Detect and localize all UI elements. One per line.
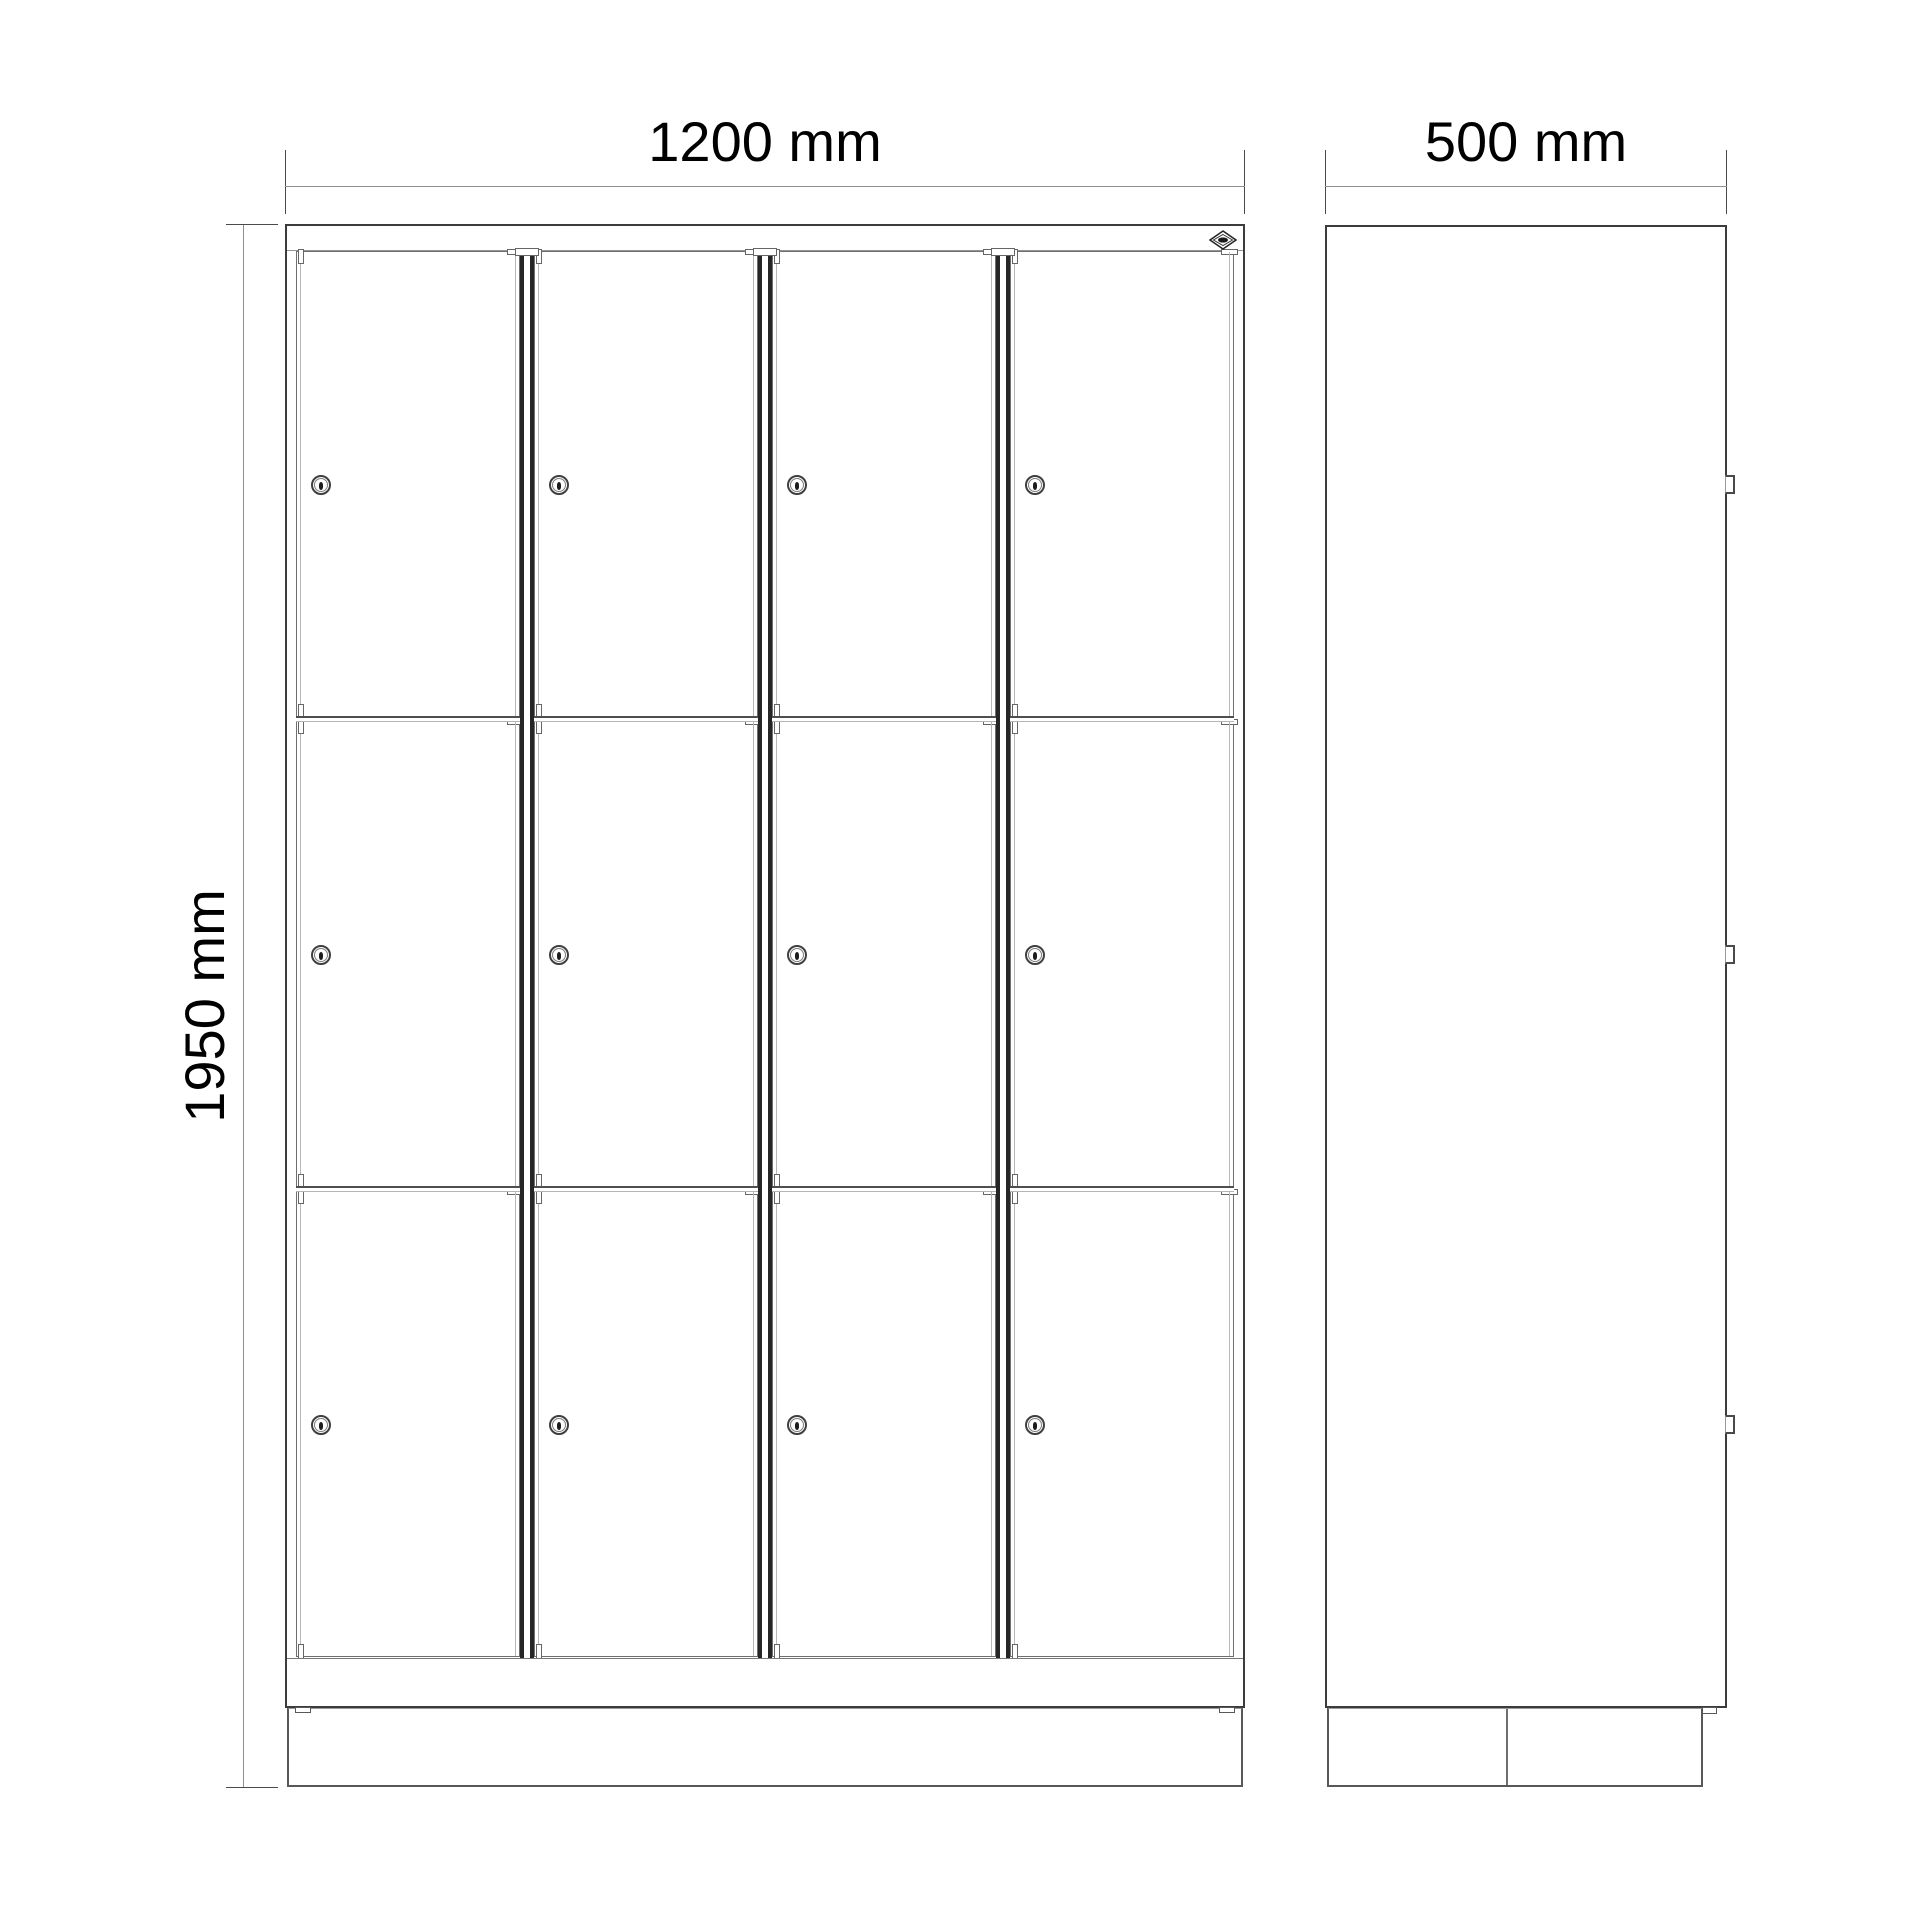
- width-dimension-line: [285, 186, 1245, 187]
- mullion: [758, 251, 772, 1658]
- depth-dimension-line: [1325, 186, 1727, 187]
- locker-door: [534, 721, 758, 1187]
- cylinder-lock-icon: [1025, 1415, 1045, 1435]
- cylinder-lock-icon: [787, 945, 807, 965]
- locker-door: [296, 721, 520, 1187]
- locker-door: [772, 251, 996, 717]
- hinge-bracket-icon: [1725, 1415, 1735, 1434]
- cylinder-lock-icon: [549, 475, 569, 495]
- cylinder-lock-icon: [311, 945, 331, 965]
- cylinder-lock-icon: [787, 475, 807, 495]
- locker-door: [534, 1191, 758, 1657]
- hinge-bracket-icon: [1725, 475, 1735, 494]
- locker-door: [772, 721, 996, 1187]
- cylinder-lock-icon: [549, 945, 569, 965]
- front-view: [285, 224, 1245, 1708]
- side-plinth-divider: [1506, 1709, 1508, 1785]
- locker-door: [1010, 1191, 1234, 1657]
- locker-doors-grid: [296, 251, 1234, 1658]
- side-plinth-bracket: [1702, 1707, 1717, 1714]
- door-hinge-bracket-bottom: [298, 1644, 304, 1659]
- plinth-notch-left: [295, 1707, 311, 1713]
- height-extension-line-bottom: [226, 1787, 278, 1788]
- cylinder-lock-icon: [549, 1415, 569, 1435]
- hinge-bracket-icon: [1725, 945, 1735, 964]
- locker-door: [296, 1191, 520, 1657]
- side-view: [1325, 225, 1727, 1708]
- door-hinge-bracket-bottom: [774, 1644, 780, 1659]
- door-hinge-bracket-top: [298, 249, 304, 264]
- technical-drawing-canvas: 1200 mm 500 mm 1950 mm: [0, 0, 1920, 1920]
- locker-door: [534, 251, 758, 717]
- locker-door: [1010, 721, 1234, 1187]
- height-extension-line-top: [226, 224, 278, 225]
- side-plinth: [1327, 1708, 1703, 1787]
- manufacturer-diamond-logo-icon: [1209, 230, 1237, 250]
- door-hinge-bracket-bottom: [536, 1644, 542, 1659]
- height-dimension-line: [243, 224, 244, 1787]
- mullion: [996, 251, 1010, 1658]
- plinth-notch-right: [1219, 1707, 1235, 1713]
- depth-dimension-label: 500 mm: [1325, 114, 1727, 170]
- locker-door: [772, 1191, 996, 1657]
- locker-door: [296, 251, 520, 717]
- height-dimension-label: 1950 mm: [177, 856, 233, 1156]
- cylinder-lock-icon: [311, 1415, 331, 1435]
- cylinder-lock-icon: [787, 1415, 807, 1435]
- front-plinth: [287, 1708, 1243, 1787]
- cylinder-lock-icon: [1025, 475, 1045, 495]
- cylinder-lock-icon: [311, 475, 331, 495]
- door-hinge-bracket-bottom: [1012, 1644, 1018, 1659]
- locker-door: [1010, 251, 1234, 717]
- cylinder-lock-icon: [1025, 945, 1045, 965]
- bottom-rail: [287, 1658, 1243, 1706]
- width-dimension-label: 1200 mm: [285, 114, 1245, 170]
- mullion: [520, 251, 534, 1658]
